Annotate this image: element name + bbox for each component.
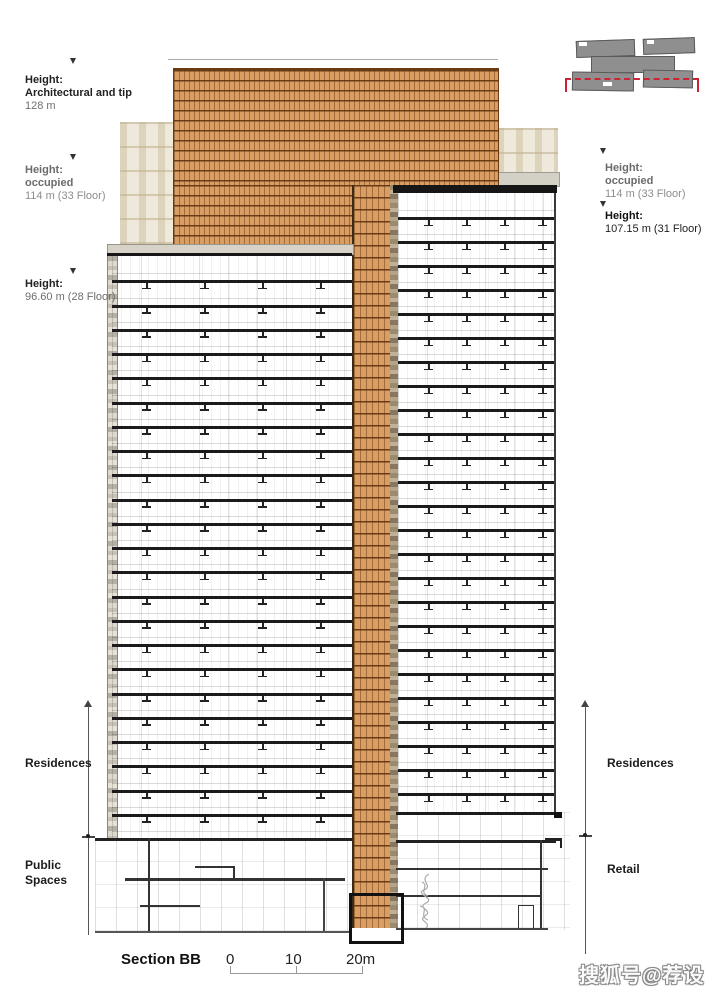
column-mark [462, 796, 471, 802]
ceiling-line [398, 618, 556, 619]
column-mark [500, 316, 509, 322]
ceiling-line [398, 450, 556, 451]
column-mark [424, 220, 433, 226]
column-mark [258, 283, 267, 289]
column-mark [316, 817, 325, 823]
column-mark [316, 477, 325, 483]
column-mark [316, 283, 325, 289]
column-mark [538, 580, 547, 586]
column-mark [200, 308, 209, 314]
floor-slab [398, 481, 556, 484]
column-mark [142, 817, 151, 823]
column-mark [142, 429, 151, 435]
ceiling-line [398, 426, 556, 427]
column-mark [424, 700, 433, 706]
background-elevation-right [497, 128, 558, 172]
ceiling-line [112, 322, 352, 323]
column-mark [200, 768, 209, 774]
column-mark [424, 580, 433, 586]
column-mark [538, 508, 547, 514]
column-mark [538, 388, 547, 394]
floor-slab [398, 625, 556, 628]
height-marker-icon [70, 58, 76, 64]
column-mark [500, 484, 509, 490]
floor-slab [398, 793, 556, 796]
slab-end [554, 812, 562, 818]
crown-brick-wall [173, 68, 499, 187]
ceiling-line [398, 786, 556, 787]
column-mark [500, 292, 509, 298]
plant-sketch [404, 872, 454, 930]
height-label-title: Height: [605, 210, 702, 223]
column-mark [142, 720, 151, 726]
column-mark [424, 436, 433, 442]
height-label-value: 114 m (33 Floor) [25, 190, 106, 203]
background-elevation-left [120, 122, 173, 244]
left-tower-floors [112, 256, 352, 838]
column-mark [462, 604, 471, 610]
ceiling-line [398, 210, 556, 211]
ceiling-line [398, 714, 556, 715]
ceiling-line [112, 710, 352, 711]
floor-slab [398, 553, 556, 556]
column-mark [424, 316, 433, 322]
column-mark [316, 744, 325, 750]
column-mark [316, 526, 325, 532]
column-mark [200, 429, 209, 435]
ceiling-line [112, 758, 352, 759]
height-label-sub: Architectural and tip [25, 87, 132, 100]
column-mark [142, 623, 151, 629]
ceiling-line [398, 330, 556, 331]
ceiling-line [112, 540, 352, 541]
zone-label-retail: Retail [607, 862, 640, 877]
column-mark [258, 477, 267, 483]
column-mark [258, 574, 267, 580]
height-marker-icon [70, 268, 76, 274]
ceiling-line [398, 738, 556, 739]
height-label-title: Height: [25, 278, 115, 291]
column-mark [316, 574, 325, 580]
zone-divider-dot [583, 833, 587, 837]
column-mark [538, 532, 547, 538]
column-mark [500, 388, 509, 394]
column-mark [316, 647, 325, 653]
ceiling-line [398, 378, 556, 379]
zone-label-residences-right: Residences [607, 756, 674, 771]
floor-slab [398, 361, 556, 364]
column-mark [258, 599, 267, 605]
column-mark [258, 793, 267, 799]
column-mark [500, 700, 509, 706]
zone-extent-line-right [585, 706, 586, 954]
column-mark [200, 574, 209, 580]
column-mark [500, 268, 509, 274]
column-mark [500, 244, 509, 250]
floor-slab [398, 601, 556, 604]
height-label-occupied-right: Height: occupied 114 m (33 Floor) [605, 162, 686, 201]
column-mark [200, 356, 209, 362]
floor-slab [398, 769, 556, 772]
ceiling-line [112, 831, 352, 832]
floor-slab [398, 409, 556, 412]
zone-extent-line-left [88, 706, 89, 935]
floor-slab [398, 529, 556, 532]
floor-slab [398, 289, 556, 292]
column-mark [424, 796, 433, 802]
column-mark [316, 356, 325, 362]
column-mark [424, 532, 433, 538]
floor-slab [398, 217, 556, 220]
scale-bar-tick [362, 966, 363, 974]
core-base-outline [349, 893, 404, 944]
ceiling-line [112, 661, 352, 662]
column-mark [258, 720, 267, 726]
floor-slab [398, 745, 556, 748]
ceiling-line [112, 589, 352, 590]
column-mark [258, 356, 267, 362]
podium-wall [148, 838, 150, 933]
column-mark [142, 744, 151, 750]
ceiling-line [398, 474, 556, 475]
column-mark [316, 720, 325, 726]
ceiling-line [112, 613, 352, 614]
column-mark [500, 508, 509, 514]
column-mark [200, 405, 209, 411]
column-mark [424, 604, 433, 610]
column-mark [462, 268, 471, 274]
key-plan-notch [579, 42, 587, 46]
column-mark [538, 220, 547, 226]
column-mark [462, 724, 471, 730]
column-mark [258, 623, 267, 629]
column-mark [316, 332, 325, 338]
ceiling-line [398, 690, 556, 691]
column-mark [316, 405, 325, 411]
podium-slab [396, 868, 548, 870]
column-mark [538, 796, 547, 802]
column-mark [462, 748, 471, 754]
right-podium [396, 812, 570, 930]
column-mark [538, 292, 547, 298]
section-cut-end [697, 78, 699, 92]
floor-slab [398, 433, 556, 436]
column-mark [142, 283, 151, 289]
ceiling-line [398, 402, 556, 403]
floor-slab [398, 337, 556, 340]
height-label-value: 107.15 m (31 Floor) [605, 223, 702, 236]
column-mark [258, 405, 267, 411]
scale-tick-20: 20m [346, 951, 375, 968]
column-mark [500, 676, 509, 682]
ceiling-line [398, 666, 556, 667]
floor-slab [398, 577, 556, 580]
height-label-9660: Height: 96.60 m (28 Floor) [25, 278, 115, 304]
column-mark [258, 453, 267, 459]
column-mark [200, 526, 209, 532]
section-cut-end [565, 78, 567, 92]
ceiling-line [112, 686, 352, 687]
column-mark [316, 599, 325, 605]
height-marker-icon [70, 154, 76, 160]
column-mark [500, 748, 509, 754]
ground-line [95, 931, 352, 933]
column-mark [258, 550, 267, 556]
column-mark [142, 768, 151, 774]
column-mark [142, 574, 151, 580]
column-mark [538, 412, 547, 418]
column-mark [538, 604, 547, 610]
ceiling-line [398, 258, 556, 259]
ceiling-line [112, 564, 352, 565]
column-mark [424, 508, 433, 514]
height-label-title: Height: [605, 162, 686, 175]
ceiling-line [398, 522, 556, 523]
floor-slab [398, 673, 556, 676]
height-label-sub: occupied [605, 175, 686, 188]
right-tower-roof-band [393, 185, 557, 193]
column-mark [424, 652, 433, 658]
floor-slab [398, 241, 556, 244]
ceiling-line [112, 516, 352, 517]
height-marker-icon [600, 201, 606, 207]
ceiling-line [398, 306, 556, 307]
column-mark [538, 556, 547, 562]
column-mark [538, 436, 547, 442]
column-mark [500, 724, 509, 730]
ceiling-line [112, 298, 352, 299]
floor-slab [398, 649, 556, 652]
scale-tick-10: 10 [285, 951, 302, 968]
column-mark [424, 628, 433, 634]
column-mark [538, 748, 547, 754]
column-mark [462, 772, 471, 778]
column-mark [424, 244, 433, 250]
column-mark [316, 453, 325, 459]
ceiling-line [398, 570, 556, 571]
column-mark [142, 477, 151, 483]
ceiling-line [398, 282, 556, 283]
height-label-value: 114 m (33 Floor) [605, 188, 686, 201]
column-mark [462, 364, 471, 370]
column-mark [500, 532, 509, 538]
roof-tip-line [168, 59, 498, 60]
column-mark [424, 484, 433, 490]
column-mark [462, 340, 471, 346]
column-mark [316, 671, 325, 677]
column-mark [316, 502, 325, 508]
column-mark [462, 484, 471, 490]
column-mark [142, 696, 151, 702]
column-mark [424, 364, 433, 370]
column-mark [258, 647, 267, 653]
zone-divider-dot [86, 834, 90, 838]
column-mark [462, 316, 471, 322]
ceiling-line [398, 642, 556, 643]
column-mark [316, 429, 325, 435]
column-mark [258, 502, 267, 508]
column-mark [142, 502, 151, 508]
column-mark [142, 647, 151, 653]
column-mark [200, 332, 209, 338]
column-mark [538, 364, 547, 370]
column-mark [200, 550, 209, 556]
key-plan [563, 34, 705, 106]
column-mark [462, 388, 471, 394]
column-mark [200, 671, 209, 677]
height-marker-icon [600, 148, 606, 154]
column-mark [500, 220, 509, 226]
column-mark [258, 308, 267, 314]
scale-bar-tick [296, 966, 297, 974]
ceiling-line [112, 492, 352, 493]
watermark: 搜狐号@荐设 [579, 959, 705, 988]
podium-slab [396, 812, 558, 815]
ceiling-line [112, 395, 352, 396]
column-mark [424, 388, 433, 394]
podium-slab [396, 840, 556, 843]
column-mark [462, 556, 471, 562]
column-mark [316, 380, 325, 386]
column-mark [500, 628, 509, 634]
height-label-sub: occupied [25, 177, 106, 190]
column-mark [424, 412, 433, 418]
column-mark [200, 502, 209, 508]
ceiling-line [112, 807, 352, 808]
column-mark [142, 526, 151, 532]
column-mark [424, 556, 433, 562]
column-mark [462, 412, 471, 418]
scale-bar-tick [230, 966, 231, 974]
floor-slab [398, 697, 556, 700]
column-mark [462, 580, 471, 586]
column-mark [500, 556, 509, 562]
column-mark [258, 429, 267, 435]
column-mark [258, 671, 267, 677]
column-mark [316, 768, 325, 774]
podium-slab [125, 878, 345, 881]
canopy-edge [560, 838, 562, 848]
column-mark [316, 793, 325, 799]
ceiling-line [398, 354, 556, 355]
column-mark [538, 316, 547, 322]
floor-slab [398, 457, 556, 460]
section-title: Section BB [121, 951, 201, 968]
column-mark [200, 623, 209, 629]
column-mark [500, 460, 509, 466]
column-mark [500, 652, 509, 658]
column-mark [200, 720, 209, 726]
height-label-value: 96.60 m (28 Floor) [25, 291, 115, 304]
height-label-occupied-left: Height: occupied 114 m (33 Floor) [25, 164, 106, 203]
height-label-title: Height: [25, 74, 132, 87]
column-mark [424, 748, 433, 754]
column-mark [258, 526, 267, 532]
column-mark [462, 508, 471, 514]
column-mark [538, 772, 547, 778]
column-mark [538, 484, 547, 490]
column-mark [500, 436, 509, 442]
column-mark [316, 696, 325, 702]
floor-slab [398, 265, 556, 268]
column-mark [424, 724, 433, 730]
column-mark [538, 244, 547, 250]
ceiling-line [398, 234, 556, 235]
column-mark [500, 412, 509, 418]
floor-slab [398, 313, 556, 316]
column-mark [142, 332, 151, 338]
column-mark [258, 817, 267, 823]
column-mark [538, 652, 547, 658]
column-mark [424, 772, 433, 778]
floor-slab [398, 721, 556, 724]
height-label-architectural: Height: Architectural and tip 128 m [25, 74, 132, 113]
column-mark [200, 817, 209, 823]
column-mark [538, 700, 547, 706]
podium-wall [323, 878, 325, 931]
column-mark [258, 744, 267, 750]
column-mark [500, 604, 509, 610]
podium-wall [540, 840, 542, 928]
column-mark [200, 283, 209, 289]
column-mark [142, 599, 151, 605]
column-mark [258, 332, 267, 338]
ceiling-line [398, 546, 556, 547]
ceiling-line [398, 594, 556, 595]
architectural-section-drawing: Height: Architectural and tip 128 m Heig… [0, 0, 707, 1000]
height-label-10715: Height: 107.15 m (31 Floor) [605, 210, 702, 236]
column-mark [258, 768, 267, 774]
column-mark [200, 647, 209, 653]
right-tower-floors [398, 193, 556, 812]
ceiling-line [112, 443, 352, 444]
column-mark [538, 676, 547, 682]
column-mark [462, 244, 471, 250]
column-mark [142, 550, 151, 556]
column-mark [424, 268, 433, 274]
column-mark [424, 340, 433, 346]
column-mark [258, 696, 267, 702]
column-mark [316, 308, 325, 314]
column-mark [462, 436, 471, 442]
ceiling-line [112, 467, 352, 468]
column-mark [538, 724, 547, 730]
ceiling-line [112, 419, 352, 420]
column-mark [462, 220, 471, 226]
column-mark [142, 671, 151, 677]
column-mark [462, 652, 471, 658]
column-mark [462, 628, 471, 634]
ceiling-line [398, 498, 556, 499]
column-mark [200, 477, 209, 483]
column-mark [142, 380, 151, 386]
left-podium [95, 838, 352, 933]
ceiling-line [112, 346, 352, 347]
column-mark [538, 628, 547, 634]
column-mark [142, 453, 151, 459]
column-mark [142, 356, 151, 362]
column-mark [200, 599, 209, 605]
podium-slab [95, 838, 352, 841]
column-mark [142, 308, 151, 314]
column-mark [538, 268, 547, 274]
column-mark [200, 696, 209, 702]
podium-slab [195, 866, 235, 868]
column-mark [462, 676, 471, 682]
zone-label-public-spaces: Public Spaces [25, 858, 83, 888]
column-mark [200, 744, 209, 750]
ceiling-line [112, 783, 352, 784]
